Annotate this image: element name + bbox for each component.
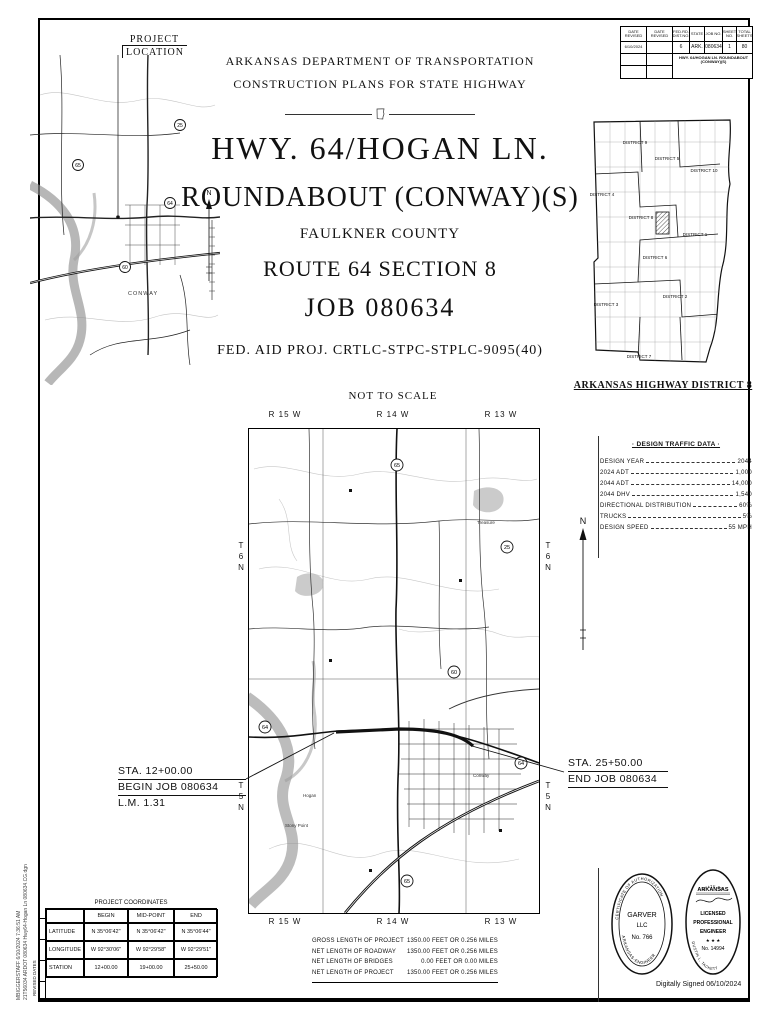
length-value: 1350.00 FEET OR 0.256 MILES — [407, 938, 498, 949]
shield-60: 60 — [122, 265, 128, 271]
begin-log-mile: L.M. 1.31 — [118, 797, 165, 809]
lake-blob — [473, 487, 504, 512]
end-job-label: END JOB 080634 — [568, 772, 668, 788]
district-label: DISTRICT 2 — [658, 294, 692, 299]
job-no-value: 080634 — [705, 42, 723, 54]
total-sheets-header: TOTAL SHEETS — [737, 27, 752, 42]
shield-65: 65 — [404, 879, 410, 885]
sta-mid: 19+00.00 — [128, 959, 174, 977]
end-job-annotation: STA. 25+50.00 END JOB 080634 — [568, 756, 668, 788]
district-label: DISTRICT 4 — [588, 192, 616, 197]
job-number-title: JOB 080634 — [180, 293, 580, 323]
range-label-top: R 14 W — [363, 410, 423, 419]
date-revised-empty — [621, 66, 647, 78]
sheet-no-value: 1 — [723, 42, 737, 54]
shield-65: 65 — [394, 463, 400, 469]
length-value: 1350.00 FEET OR 0.256 MILES — [407, 949, 498, 960]
range-label-bottom: R 14 W — [363, 917, 423, 926]
col-header: BEGIN — [84, 909, 128, 923]
lat-begin: N 35°06'42" — [84, 923, 128, 941]
total-sheets-value: 80 — [737, 42, 752, 54]
state-value: ARK. — [690, 42, 705, 54]
dtd-value: 60% — [739, 503, 752, 509]
district-label: DISTRICT 3 — [592, 302, 620, 307]
scale-note: NOT TO SCALE — [248, 390, 538, 402]
date-revised-empty — [647, 42, 673, 54]
sta-end: 25+50.00 — [174, 959, 218, 977]
project-location-line1: PROJECT — [122, 34, 187, 45]
district-map-caption: ARKANSAS HIGHWAY DISTRICT 8 — [572, 380, 754, 391]
date-revised-empty — [647, 66, 673, 78]
range-label-top: R 13 W — [471, 410, 531, 419]
pe-number: No. 14994 — [701, 946, 724, 952]
pe-license-seal: STATE OF ARKANSAS LICENSED PROFESSIONAL … — [684, 868, 742, 976]
row-label: LONGITUDE — [46, 941, 84, 959]
pe-professional: PROFESSIONAL — [693, 920, 732, 926]
lake-blob — [295, 573, 324, 596]
date-revised-header: DATE REVISED — [647, 27, 673, 42]
project-name-cell: HWY. 64/HOGAN LN. ROUNDABOUT (CONWAY)(S) — [673, 54, 752, 66]
location-map-graphic: 65 64 60 25 CONWAY — [30, 55, 220, 385]
length-label: NET LENGTH OF ROADWAY — [312, 949, 396, 960]
end-station: STA. 25+50.00 — [568, 756, 668, 772]
garver-name: GARVER — [627, 912, 656, 919]
sheet-no-header: SHEET NO. — [723, 27, 737, 42]
township-label-right: T 5 N — [543, 780, 553, 813]
date-revised-value: 6/10/2024 — [621, 42, 647, 54]
title-sheet: MBIGGERSTAFF 6/10/2024 7:36:51 AM 21T560… — [0, 0, 770, 1024]
revised-dates-label: REVISED DATES — [31, 960, 38, 996]
job-identification-table: DATE REVISED 6/10/2024 DATE REVISED FED.… — [620, 26, 753, 79]
map-label-treasure: Treasure — [477, 520, 495, 525]
dtd-label: TRUCKS — [600, 514, 626, 520]
district-label: DISTRICT 7 — [622, 354, 656, 359]
fed-aid-title: FED. AID PROJ. CRTLC-STPC-STPLC-9095(40) — [180, 343, 580, 359]
shield-64: 64 — [518, 761, 524, 767]
lon-end: W 92°29'51" — [174, 941, 218, 959]
dtd-label: 2044 ADT — [600, 481, 629, 487]
range-label-bottom: R 13 W — [471, 917, 531, 926]
dtd-label: DIRECTIONAL DISTRIBUTION — [600, 503, 691, 509]
dtd-label: DESIGN SPEED — [600, 525, 649, 531]
district-label: DISTRICT 1 — [678, 232, 712, 237]
dtd-value: 1,540 — [735, 492, 752, 498]
city-label-conway: CONWAY — [128, 291, 158, 297]
fed-rd-header: FED.RD. DIST.NO. — [673, 27, 690, 42]
lon-mid: W 92°29'58" — [128, 941, 174, 959]
north-label: N — [576, 516, 590, 526]
lon-begin: W 92°30'06" — [84, 941, 128, 959]
garver-llc: LLC — [636, 923, 648, 929]
dtd-value: 5% — [743, 514, 752, 520]
dtd-value: 55 MPH — [729, 525, 752, 531]
project-route-highlight — [336, 729, 473, 746]
column-divider — [598, 868, 599, 1002]
length-value: 1350.00 FEET OR 0.256 MILES — [407, 970, 498, 981]
length-label: GROSS LENGTH OF PROJECT — [312, 938, 404, 949]
date-revised-empty — [621, 54, 647, 66]
digitally-signed-note: Digitally Signed 06/10/2024 — [656, 981, 741, 988]
location-map-shields: 65 64 60 25 — [73, 120, 186, 273]
dtd-value: 2044 — [737, 459, 752, 465]
lat-mid: N 35°06'42" — [128, 923, 174, 941]
dtd-label: 2044 DHV — [600, 492, 630, 498]
lat-end: N 35°06'44" — [174, 923, 218, 941]
begin-station: STA. 12+00.00 — [118, 764, 246, 780]
project-location-point — [116, 215, 120, 219]
dtd-label: 2024 ADT — [600, 470, 629, 476]
range-label-top: R 15 W — [255, 410, 315, 419]
shield-25: 25 — [177, 123, 183, 129]
pe-arkansas: ARKANSAS — [697, 887, 729, 893]
shield-65: 65 — [75, 163, 81, 169]
district-label: DISTRICT 10 — [690, 168, 718, 173]
route-section-title: ROUTE 64 SECTION 8 — [180, 256, 580, 282]
col-header: END — [174, 909, 218, 923]
agency-title: ARKANSAS DEPARTMENT OF TRANSPORTATION — [180, 54, 580, 69]
township-label-left: T 6 N — [236, 540, 246, 573]
fed-rd-value: 6 — [673, 42, 690, 54]
dtd-value: 14,000 — [732, 481, 752, 487]
design-traffic-data: · DESIGN TRAFFIC DATA · DESIGN YEAR2044 … — [600, 441, 752, 531]
dtd-label: DESIGN YEAR — [600, 459, 644, 465]
corner-cell — [46, 909, 84, 923]
highway-title-line2: ROUNDABOUT (CONWAY)(S) — [180, 182, 580, 214]
col-header: MID-POINT — [128, 909, 174, 923]
range-label-bottom: R 15 W — [255, 917, 315, 926]
district-label: DISTRICT 5 — [650, 156, 684, 161]
shield-60: 60 — [451, 670, 457, 676]
shield-64: 64 — [167, 201, 173, 207]
date-revised-empty — [647, 54, 673, 66]
arkansas-glyph-icon — [376, 108, 385, 120]
project-lengths: GROSS LENGTH OF PROJECT1350.00 FEET OR 0… — [312, 938, 498, 983]
length-value: 0.00 FEET OR 0.00 MILES — [421, 959, 498, 970]
begin-job-label: BEGIN JOB 080634 — [118, 780, 246, 796]
map-label-conway: Conway — [473, 773, 490, 778]
design-traffic-title: · DESIGN TRAFFIC DATA · — [600, 441, 752, 448]
garver-number: No. 766 — [631, 935, 653, 941]
topo-map-graphic: 64 65 25 65 64 60 Treasure Stony Point C… — [248, 428, 540, 914]
north-arrow-icon: N — [576, 516, 590, 661]
district-label: DISTRICT 8 — [624, 215, 658, 220]
begin-job-annotation: STA. 12+00.00 BEGIN JOB 080634 L.M. 1.31 — [118, 764, 246, 812]
garver-authorization-seal: CERTIFICATE OF AUTHORIZATION ARKANSAS-EN… — [610, 872, 674, 976]
divider-line — [389, 114, 476, 115]
shield-25: 25 — [504, 545, 510, 551]
county-title: FAULKNER COUNTY — [180, 226, 580, 243]
township-label-right: T 6 N — [543, 540, 553, 573]
highway-title-line1: HWY. 64/HOGAN LN. — [180, 130, 580, 167]
plot-stamp: MBIGGERSTAFF 6/10/2024 7:36:51 AM 21T560… — [16, 830, 30, 1000]
divider-line — [285, 114, 372, 115]
pe-engineer: ENGINEER — [700, 929, 727, 935]
length-label: NET LENGTH OF PROJECT — [312, 970, 394, 981]
dtd-value: 1,000 — [735, 470, 752, 476]
length-label: NET LENGTH OF BRIDGES — [312, 959, 393, 970]
row-label: STATION — [46, 959, 84, 977]
pe-stars: ★ ★ ★ — [706, 938, 722, 943]
map-label-hogan: Hogan — [303, 793, 317, 798]
plot-stamp-user-date: MBIGGERSTAFF 6/10/2024 7:36:51 AM — [16, 830, 23, 1000]
plans-subtitle: CONSTRUCTION PLANS FOR STATE HIGHWAY — [180, 77, 580, 92]
date-revised-header: DATE REVISED — [621, 27, 647, 42]
map-label-stony-point: Stony Point — [285, 823, 309, 828]
arkansas-district-map: DISTRICT 9 DISTRICT 5 DISTRICT 10 DISTRI… — [580, 112, 750, 377]
district-label: DISTRICT 9 — [618, 140, 652, 145]
pe-licensed: LICENSED — [700, 911, 726, 917]
title-divider — [285, 108, 475, 120]
project-coordinates: PROJECT COORDINATES BEGIN MID-POINT END … — [45, 900, 217, 978]
column-divider — [598, 436, 599, 558]
district-label: DISTRICT 6 — [638, 255, 672, 260]
job-no-header: JOB NO. — [705, 27, 723, 42]
state-header: STATE — [690, 27, 705, 42]
sta-begin: 12+00.00 — [84, 959, 128, 977]
plot-stamp-filepath: 21T56034 ARDOT 080634 Hwy64-Hogan Ln 080… — [23, 830, 30, 1000]
coordinates-title: PROJECT COORDINATES — [45, 900, 217, 906]
row-label: LATITUDE — [46, 923, 84, 941]
shield-64: 64 — [262, 725, 268, 731]
